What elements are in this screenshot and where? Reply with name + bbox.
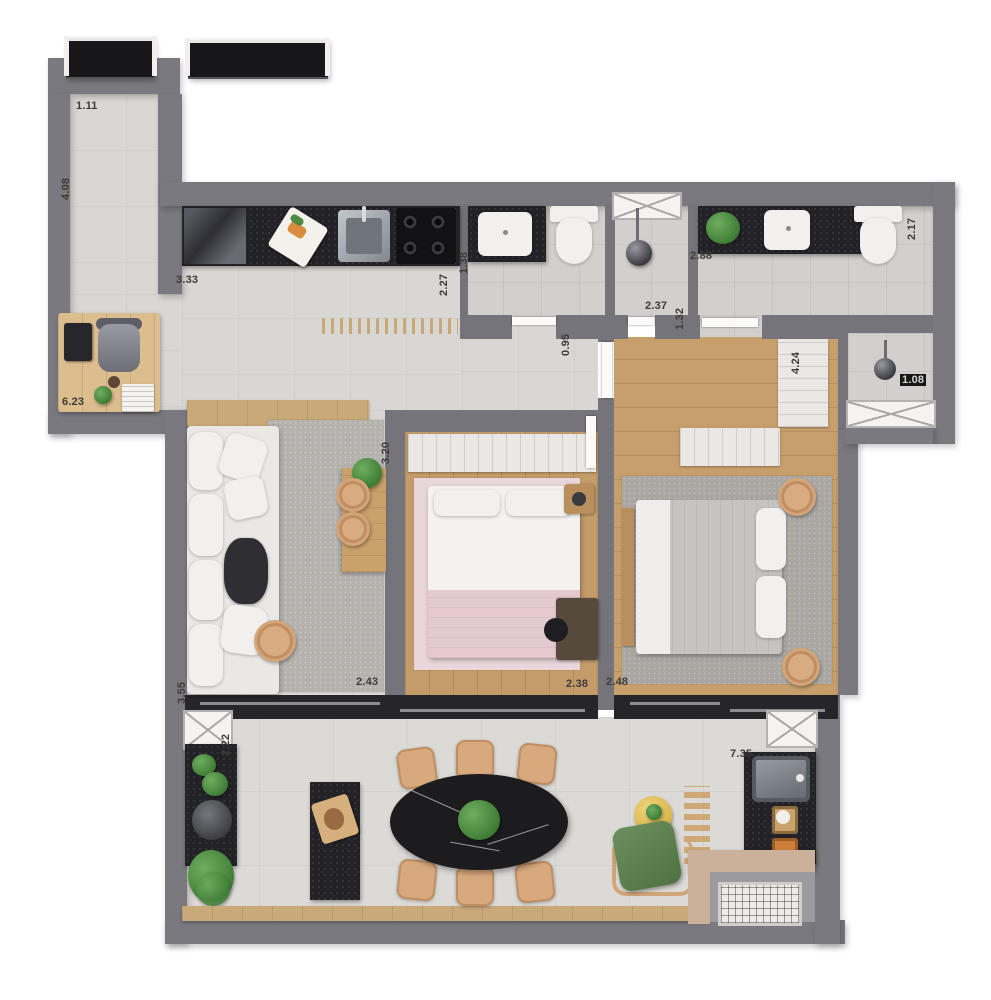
wall bbox=[933, 182, 955, 444]
terrace-bench bbox=[182, 906, 710, 921]
window-frame bbox=[152, 36, 157, 76]
pillow bbox=[434, 490, 500, 516]
plant-icon bbox=[202, 772, 228, 796]
sofa-throw bbox=[224, 538, 268, 604]
window-frame bbox=[325, 38, 330, 76]
window-facade bbox=[188, 40, 328, 79]
door-bath-social[interactable] bbox=[512, 317, 556, 325]
dimension-label: 3.33 bbox=[176, 274, 198, 286]
dimension-label: 2.37 bbox=[645, 300, 667, 312]
wall-shower-box-right bbox=[688, 204, 698, 339]
pillow bbox=[506, 490, 572, 516]
sliding-door-glass bbox=[630, 702, 720, 705]
wardrobe-bedroom3-top[interactable] bbox=[680, 428, 780, 466]
sofa-pillow bbox=[189, 494, 223, 556]
drain-icon bbox=[786, 226, 791, 231]
sofa-pillow bbox=[189, 560, 223, 620]
sofa-pillow bbox=[189, 432, 223, 490]
refrigerator bbox=[184, 208, 246, 264]
planter-wall bbox=[688, 850, 815, 872]
sliding-door-glass bbox=[200, 702, 380, 705]
floor-grate bbox=[718, 882, 802, 926]
office-chair[interactable] bbox=[98, 324, 140, 372]
dining-chair[interactable] bbox=[456, 866, 494, 906]
bed-sheet-fold bbox=[636, 500, 670, 654]
wall bbox=[838, 430, 858, 695]
wall bbox=[165, 410, 187, 944]
lamp-icon bbox=[572, 492, 586, 506]
armchair-green[interactable] bbox=[611, 819, 683, 893]
laptop bbox=[64, 323, 92, 361]
dimension-label: 0.95 bbox=[560, 334, 572, 356]
dining-chair[interactable] bbox=[396, 858, 438, 902]
wall bbox=[815, 695, 840, 944]
door-bath-suite[interactable] bbox=[702, 318, 758, 327]
toilet-bowl bbox=[556, 218, 592, 264]
dimension-label: 4.08 bbox=[60, 178, 72, 200]
dining-chair[interactable] bbox=[514, 860, 556, 904]
plant-icon bbox=[94, 386, 112, 404]
window-frame bbox=[185, 38, 190, 76]
dimension-label: 3.20 bbox=[380, 442, 392, 464]
wardrobe-bedroom2[interactable] bbox=[408, 434, 596, 472]
wall-bedroom23 bbox=[598, 398, 614, 710]
sliding-door-frame bbox=[185, 695, 598, 719]
door-bedroom3[interactable] bbox=[602, 342, 612, 398]
dimension-label: 4.24 bbox=[790, 352, 802, 374]
toilet-bowl bbox=[860, 218, 896, 264]
table-centerpiece-plant bbox=[458, 800, 500, 840]
notebook bbox=[122, 384, 154, 412]
plant-large bbox=[196, 872, 230, 906]
dimension-label: 1.32 bbox=[674, 308, 686, 330]
wall-shower-box-left bbox=[605, 204, 615, 315]
dimension-label: 1.08 bbox=[900, 374, 926, 386]
showerhead-icon bbox=[626, 240, 652, 266]
window-corridor bbox=[66, 38, 154, 79]
door-shower-box[interactable] bbox=[628, 317, 654, 325]
stool[interactable] bbox=[336, 478, 370, 512]
desk-chair[interactable] bbox=[544, 618, 568, 642]
wall-bedroom2-top bbox=[385, 410, 614, 432]
dimension-label: 7.35 bbox=[730, 748, 752, 760]
cooktop bbox=[396, 208, 456, 264]
faucet-icon bbox=[362, 206, 366, 222]
dimension-label: 2.22 bbox=[220, 734, 232, 756]
window-frame bbox=[64, 36, 69, 76]
knob-icon bbox=[796, 774, 804, 782]
wall-bedroom3-top bbox=[762, 315, 848, 339]
plant-icon bbox=[706, 212, 740, 244]
stool[interactable] bbox=[336, 512, 370, 546]
pillow bbox=[756, 508, 786, 570]
bed-bench bbox=[622, 508, 634, 646]
dimension-label: 2.48 bbox=[606, 676, 628, 688]
pouf[interactable] bbox=[778, 478, 816, 516]
showerhead-icon bbox=[874, 358, 896, 380]
dimension-label: 3.55 bbox=[176, 682, 188, 704]
window-shower-box bbox=[612, 192, 682, 220]
coffee-table bbox=[254, 620, 296, 662]
wall-living-bedroom2 bbox=[385, 432, 405, 710]
wardrobe-bedroom3-side[interactable] bbox=[778, 339, 828, 427]
window-terrace-right bbox=[766, 710, 818, 748]
crate-contents bbox=[776, 810, 790, 824]
floor-plan: 1.11 4.08 3.33 2.27 1.38 2.37 0.95 2.88 … bbox=[0, 0, 991, 1000]
sofa-pillow bbox=[189, 624, 223, 686]
wall bbox=[160, 182, 955, 206]
dimension-label: 2.43 bbox=[356, 676, 378, 688]
cup-icon bbox=[108, 376, 120, 388]
dimension-label: 1.11 bbox=[76, 100, 98, 112]
terrace-sink bbox=[192, 800, 232, 840]
window-shower-suite bbox=[846, 400, 936, 428]
dimension-label: 6.23 bbox=[62, 396, 84, 408]
corridor-floor bbox=[70, 94, 158, 298]
sliding-door-glass bbox=[400, 709, 585, 712]
dimension-label: 2.17 bbox=[906, 218, 918, 240]
dimension-label: 2.27 bbox=[438, 274, 450, 296]
drain-icon bbox=[503, 230, 508, 235]
sink-basin bbox=[346, 218, 382, 254]
wall-shower-suite-top bbox=[845, 315, 933, 333]
dimension-label: 1.38 bbox=[458, 252, 470, 274]
planter-wall bbox=[688, 872, 710, 924]
shower-arm bbox=[636, 208, 639, 244]
plant-icon bbox=[646, 804, 662, 820]
bench-slats bbox=[322, 318, 458, 334]
wall-bedroom3-top bbox=[598, 315, 628, 339]
dimension-label: 2.38 bbox=[566, 678, 588, 690]
pillow bbox=[756, 576, 786, 638]
pouf[interactable] bbox=[782, 648, 820, 686]
door-bedroom2[interactable] bbox=[586, 416, 596, 468]
dimension-label: 2.88 bbox=[690, 250, 712, 262]
